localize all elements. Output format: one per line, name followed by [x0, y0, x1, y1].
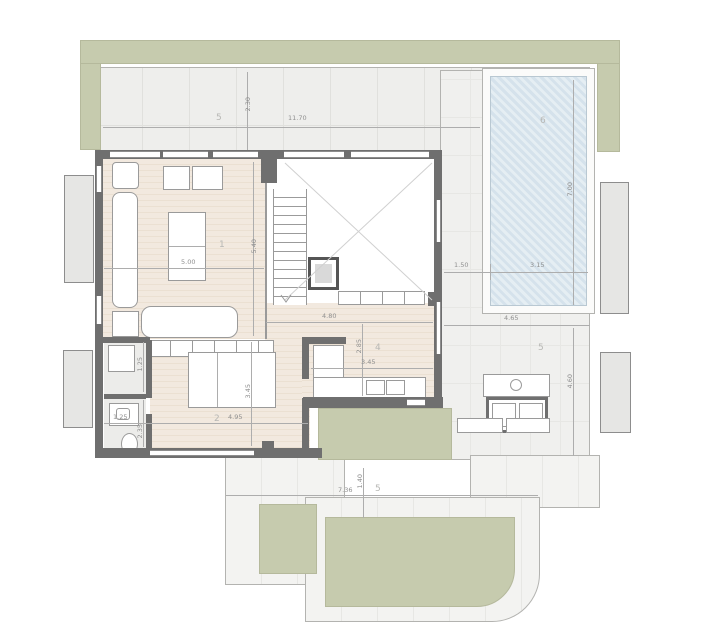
dim-label-2-35: 2.35	[137, 421, 144, 441]
wall-living-south	[95, 337, 150, 343]
armchair-2	[192, 166, 223, 190]
side-box-left-lower	[63, 350, 93, 428]
dim-label-2-85: 2.85	[356, 336, 363, 356]
floor-plan-canvas: 5 1 6 5 4 2 5 2.30 11.70 5.00 5.40 4.80 …	[0, 0, 715, 643]
side-box-right-upper	[600, 182, 629, 314]
dim-label-4-65: 4.65	[504, 315, 518, 322]
dim-label-3-15: 3.15	[530, 262, 544, 269]
window-east-lower	[436, 302, 441, 354]
room-label-bedroom: 2	[214, 415, 220, 424]
sofa-left	[112, 192, 138, 308]
room-label-living: 1	[219, 241, 225, 250]
room-label-terrace-right: 5	[538, 344, 544, 353]
window-north-3	[213, 151, 258, 158]
coffee-table-divider	[169, 246, 205, 247]
wall-living-stairs	[265, 183, 267, 339]
fireplace-core	[315, 264, 332, 283]
staircase	[273, 189, 307, 305]
side-table-top	[112, 162, 139, 189]
kitchen-sink	[366, 380, 385, 395]
wall-east	[434, 152, 442, 398]
window-north-5	[351, 151, 429, 158]
wall-kitchen-stub-v	[302, 337, 309, 379]
garden-leg-right	[597, 63, 620, 152]
dim-label-1-25-bath: 1.25	[137, 354, 144, 374]
dim-label-11-70: 11.70	[288, 115, 307, 122]
dimline-hall-h	[266, 322, 433, 323]
wall-bedroom-east	[302, 398, 309, 450]
window-west-lower	[96, 296, 102, 324]
dim-label-5-40: 5.40	[251, 236, 258, 256]
garden-leg-left	[80, 63, 101, 150]
dim-label-3-45-kitchen: 3.45	[361, 359, 375, 366]
bed-divider	[217, 353, 218, 407]
side-box-right-lower	[600, 352, 631, 433]
window-west-upper	[96, 166, 102, 192]
window-kitchen-south	[407, 399, 425, 406]
dim-label-4-60: 4.60	[567, 371, 574, 391]
dim-label-1-25: 1.25	[113, 414, 127, 421]
planter-small	[259, 504, 317, 574]
terrace-bench-2	[506, 418, 550, 433]
window-north-2	[163, 151, 208, 158]
window-south	[150, 450, 254, 456]
window-east-upper	[436, 200, 441, 242]
void-bench	[338, 291, 425, 305]
dimline-pool-split	[490, 264, 491, 280]
room-label-kitchen: 4	[375, 344, 381, 353]
window-north-1	[110, 151, 160, 158]
room-label-pool: 6	[540, 117, 546, 126]
room-label-terrace-bottom: 5	[375, 485, 381, 494]
garden-band-top	[80, 40, 620, 64]
sofa-long	[141, 306, 238, 338]
dimline-right-h1	[444, 272, 588, 273]
shower-tray	[108, 345, 135, 372]
dim-label-5-00: 5.00	[181, 259, 195, 266]
dim-label-4-80: 4.80	[322, 313, 336, 320]
bed	[188, 352, 276, 408]
planter-large	[325, 517, 515, 607]
armchair-1	[163, 166, 190, 190]
wall-bath-divider	[104, 394, 146, 399]
wall-bath-upper	[146, 340, 152, 398]
dimline-right-v	[573, 328, 574, 456]
room-label-terrace-top: 5	[216, 114, 222, 123]
dimline-bedroom-h	[104, 423, 308, 424]
dim-label-4-95: 4.95	[228, 414, 242, 421]
dim-label-3-45-bedroom: 3.45	[245, 381, 252, 401]
planter-mid	[318, 408, 452, 460]
pier-south	[262, 441, 274, 458]
wall-bath-lower	[146, 414, 152, 450]
dim-label-7-00: 7.00	[567, 179, 574, 199]
pier-void	[261, 150, 277, 183]
dimline-kitchen-h	[311, 368, 433, 369]
dim-label-7-36: 7.36	[338, 487, 352, 494]
bbq-burner	[510, 379, 522, 391]
side-table-bottom	[112, 311, 139, 337]
dimline-living-h	[104, 268, 264, 269]
dimline-terrace-top	[103, 127, 480, 128]
dim-label-2-30: 2.30	[245, 94, 252, 114]
window-north-4	[284, 151, 344, 158]
terrace-bench-1	[457, 418, 503, 433]
dim-label-1-50: 1.50	[454, 262, 468, 269]
side-box-left-upper	[64, 175, 94, 283]
dim-label-1-40: 1.40	[357, 471, 364, 491]
dimline-right-h2	[444, 325, 590, 326]
dimline-bottom-h	[226, 495, 538, 496]
kitchen-sink-2	[386, 380, 405, 395]
